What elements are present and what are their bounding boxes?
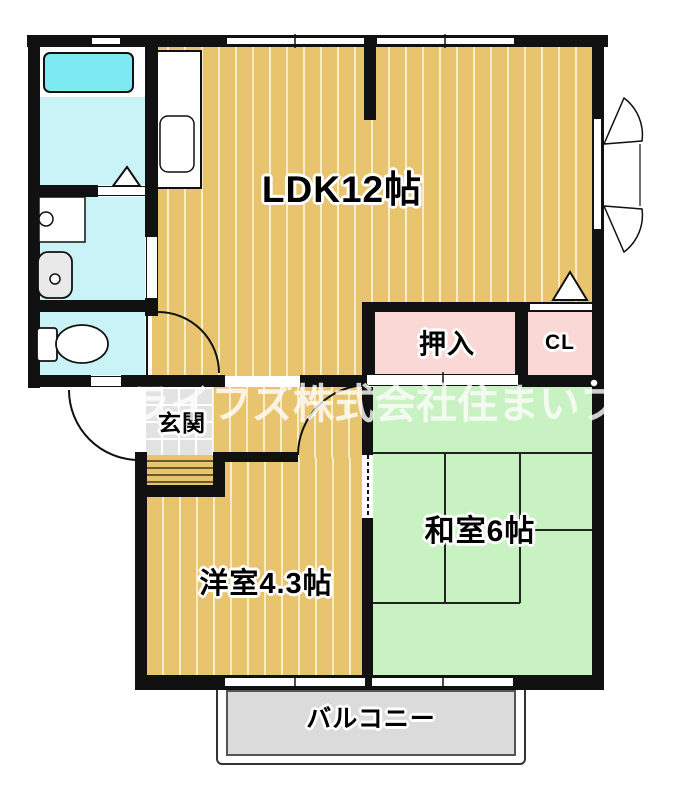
label-ldk: LDK12帖 xyxy=(262,159,422,213)
toilet-tank xyxy=(37,328,57,361)
casement-window-fan xyxy=(604,98,642,144)
ldk-door-arc xyxy=(158,312,219,373)
washbasin-drain-icon xyxy=(50,274,60,284)
floorplan-page: { "rooms": { "ldk": { "label": "LDK12帖" … xyxy=(0,0,700,793)
bathtub xyxy=(44,53,133,92)
label-oshiire: 押入 xyxy=(419,323,475,362)
triangle-marker xyxy=(553,272,587,300)
triangle-marker xyxy=(113,167,140,186)
label-balcony: バルコニー xyxy=(306,699,436,735)
label-youshitsu: 洋室4.3帖 xyxy=(199,560,332,602)
kitchen-sink xyxy=(160,116,194,172)
label-washitsu: 和室6帖 xyxy=(425,506,536,550)
casement-window-fan xyxy=(604,206,642,252)
washer-drain-icon xyxy=(39,212,53,226)
toilet-bowl xyxy=(56,325,108,363)
watermark-text: ーライフズ株式会社住まいプ xyxy=(88,370,621,430)
label-cl: CL xyxy=(545,331,575,355)
